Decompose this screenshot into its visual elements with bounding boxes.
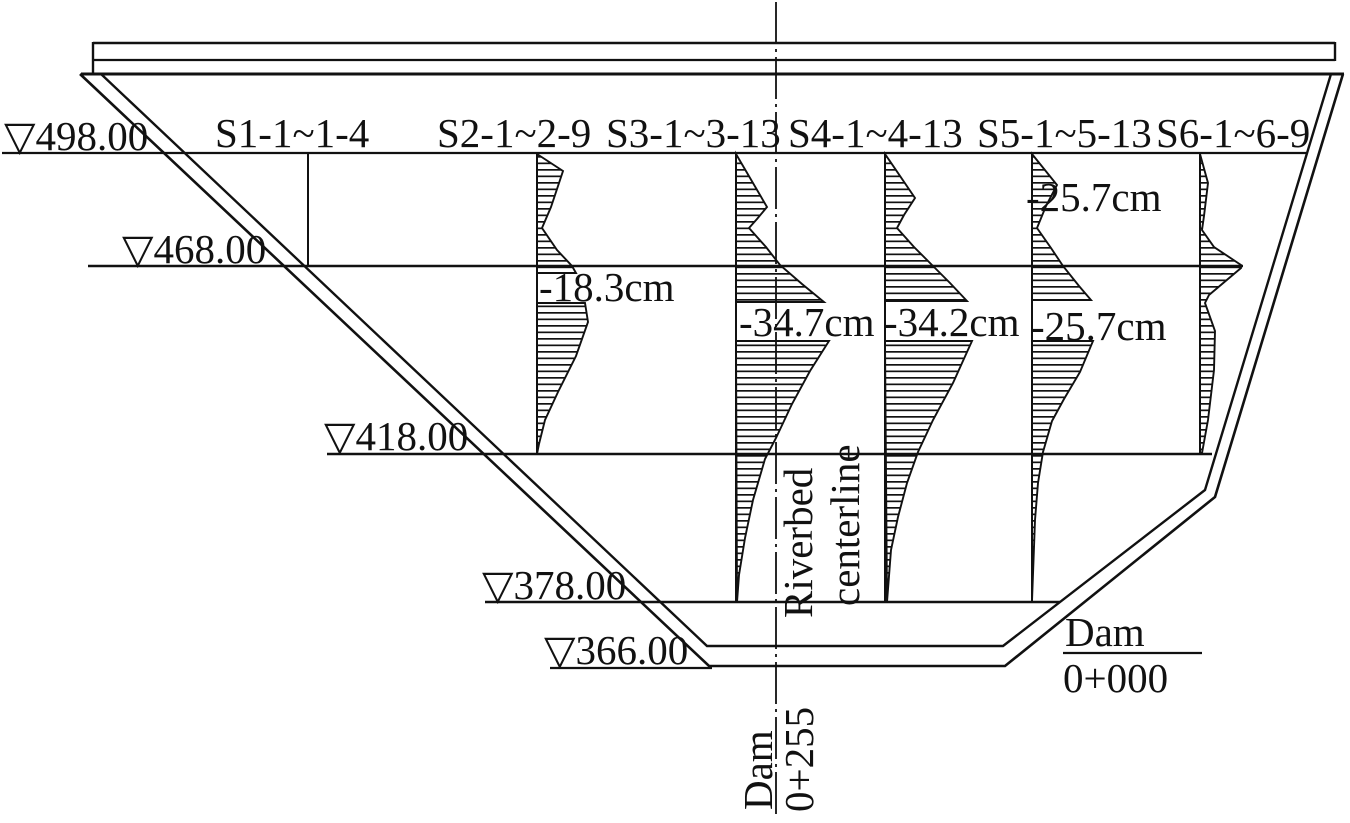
settlement-label-s5-upper: -25.7cm (1026, 174, 1162, 220)
dam-body-outline (80, 74, 1343, 666)
settlement-profile-s2-upper (537, 154, 576, 273)
settlement-profile-s2-lower (537, 303, 588, 454)
settlement-label-s3: -34.7cm (739, 299, 875, 345)
settlement-profile-s3-upper (736, 154, 824, 302)
dam-outline-inner (101, 74, 1331, 646)
section-label-s1: S1-1~1-4 (215, 110, 369, 156)
settlement-label-s5-lower: -25.7cm (1031, 303, 1167, 349)
station-dam-0255-value: 0+255 (776, 707, 822, 812)
riverbed-centerline-label: Riverbed centerline (775, 444, 868, 618)
station-label-dam-0255: Dam 0+255 (735, 707, 822, 812)
station-label-dam-0000: Dam 0+000 (1063, 609, 1202, 701)
elevation-label-366: ▽366.00 (544, 627, 688, 673)
settlement-profile-s6 (1200, 154, 1241, 453)
settlement-profile-s4-lower (885, 341, 972, 602)
station-dam-0255-name: Dam (735, 730, 781, 810)
dam-crest (81, 42, 1344, 75)
elevation-label-468: ▽468.00 (122, 226, 266, 272)
section-label-s3: S3-1~3-13 (606, 110, 781, 156)
station-dam-0000-value: 0+000 (1063, 655, 1168, 701)
settlement-labels: -18.3cm -34.7cm -34.2cm -25.7cm -25.7cm (539, 174, 1167, 349)
section-label-s2: S2-1~2-9 (437, 110, 591, 156)
settlement-profile-s4-upper (885, 154, 967, 301)
riverbed-centerline-label-line2: centerline (822, 444, 868, 606)
section-label-s6: S6-1~6-9 (1156, 110, 1310, 156)
station-dam-0000-name: Dam (1065, 609, 1145, 655)
elevation-label-378: ▽378.00 (482, 562, 626, 608)
section-labels: S1-1~1-4 S2-1~2-9 S3-1~3-13 S4-1~4-13 S5… (215, 110, 1310, 156)
settlement-label-s2: -18.3cm (539, 264, 675, 310)
dam-cross-section-svg: S1-1~1-4 S2-1~2-9 S3-1~3-13 S4-1~4-13 S5… (0, 0, 1350, 823)
settlement-profile-s5-lower (1032, 341, 1093, 601)
dam-settlement-diagram: S1-1~1-4 S2-1~2-9 S3-1~3-13 S4-1~4-13 S5… (0, 0, 1350, 823)
settlement-profiles (537, 154, 1241, 602)
settlement-label-s4: -34.2cm (884, 299, 1020, 345)
elevation-label-418: ▽418.00 (324, 413, 468, 459)
dam-outline-outer (80, 74, 1343, 666)
riverbed-centerline-label-line1: Riverbed (775, 468, 821, 618)
elevation-labels: ▽498.00 ▽468.00 ▽418.00 ▽378.00 ▽366.00 (4, 113, 688, 673)
elevation-label-498: ▽498.00 (4, 113, 148, 159)
section-label-s5: S5-1~5-13 (977, 110, 1152, 156)
section-label-s4: S4-1~4-13 (788, 110, 963, 156)
